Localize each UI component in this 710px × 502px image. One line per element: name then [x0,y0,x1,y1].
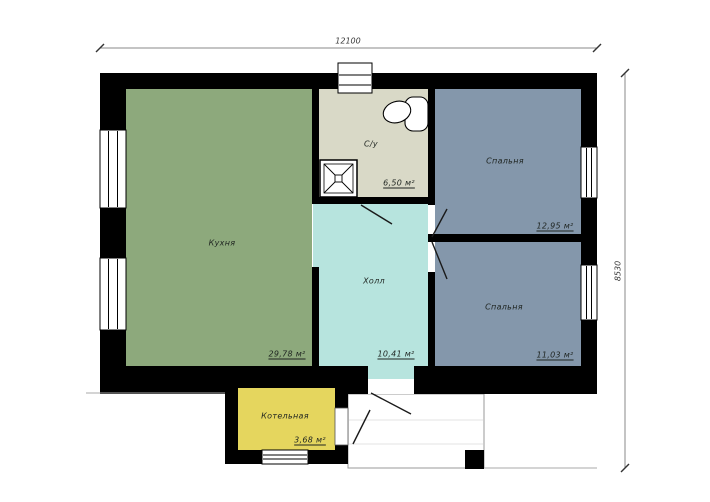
room-label-boiler: Котельная [261,412,309,421]
window-right-1 [581,147,597,198]
room-label-bedroom-top: Спальня [486,157,524,166]
window-right-2 [581,265,597,320]
room-floors [126,89,581,468]
window-boiler [262,450,308,464]
room-area-boiler: 3,68 м² [294,436,326,445]
wall-kitchen-hall [312,267,319,366]
window-left-2 [100,258,126,330]
boiler-door-opening [335,408,348,445]
shower-drain [335,175,342,182]
wall-hall-bedrooms-lower [428,272,435,366]
porch-pillar [465,450,484,469]
floor-plan-drawing [0,0,710,502]
room-area-bathroom: 6,50 м² [383,179,415,188]
floor-plan-canvas: 12100 8530 Кухня 29,78 м² С/у 6,50 м² Хо… [0,0,710,502]
wall-hall-bedrooms-upper [428,89,435,205]
room-label-kitchen: Кухня [209,239,236,248]
room-area-bedroom-top: 12,95 м² [536,222,573,231]
room-area-kitchen: 29,78 м² [268,350,305,359]
room-label-bathroom: С/у [364,140,378,149]
wall-between-bedrooms [428,234,581,242]
entrance-porch [348,394,484,468]
entrance-step [368,366,414,379]
wall-bathroom-hall [312,197,435,204]
wall-left [100,73,126,394]
wall-bottom [100,366,597,394]
wall-right [581,73,597,394]
dimension-top-label: 12100 [335,37,360,46]
room-area-bedroom-bottom: 11,03 м² [536,351,573,360]
room-area-hall: 10,41 м² [377,350,414,359]
dimension-right-label: 8530 [614,261,623,281]
wall-kitchen-bathroom [312,89,319,197]
room-label-bedroom-bottom: Спальня [485,303,523,312]
room-label-hall: Холл [363,277,385,286]
window-top-bathroom [338,63,372,93]
window-left-1 [100,130,126,208]
kitchen-floor [126,89,312,366]
